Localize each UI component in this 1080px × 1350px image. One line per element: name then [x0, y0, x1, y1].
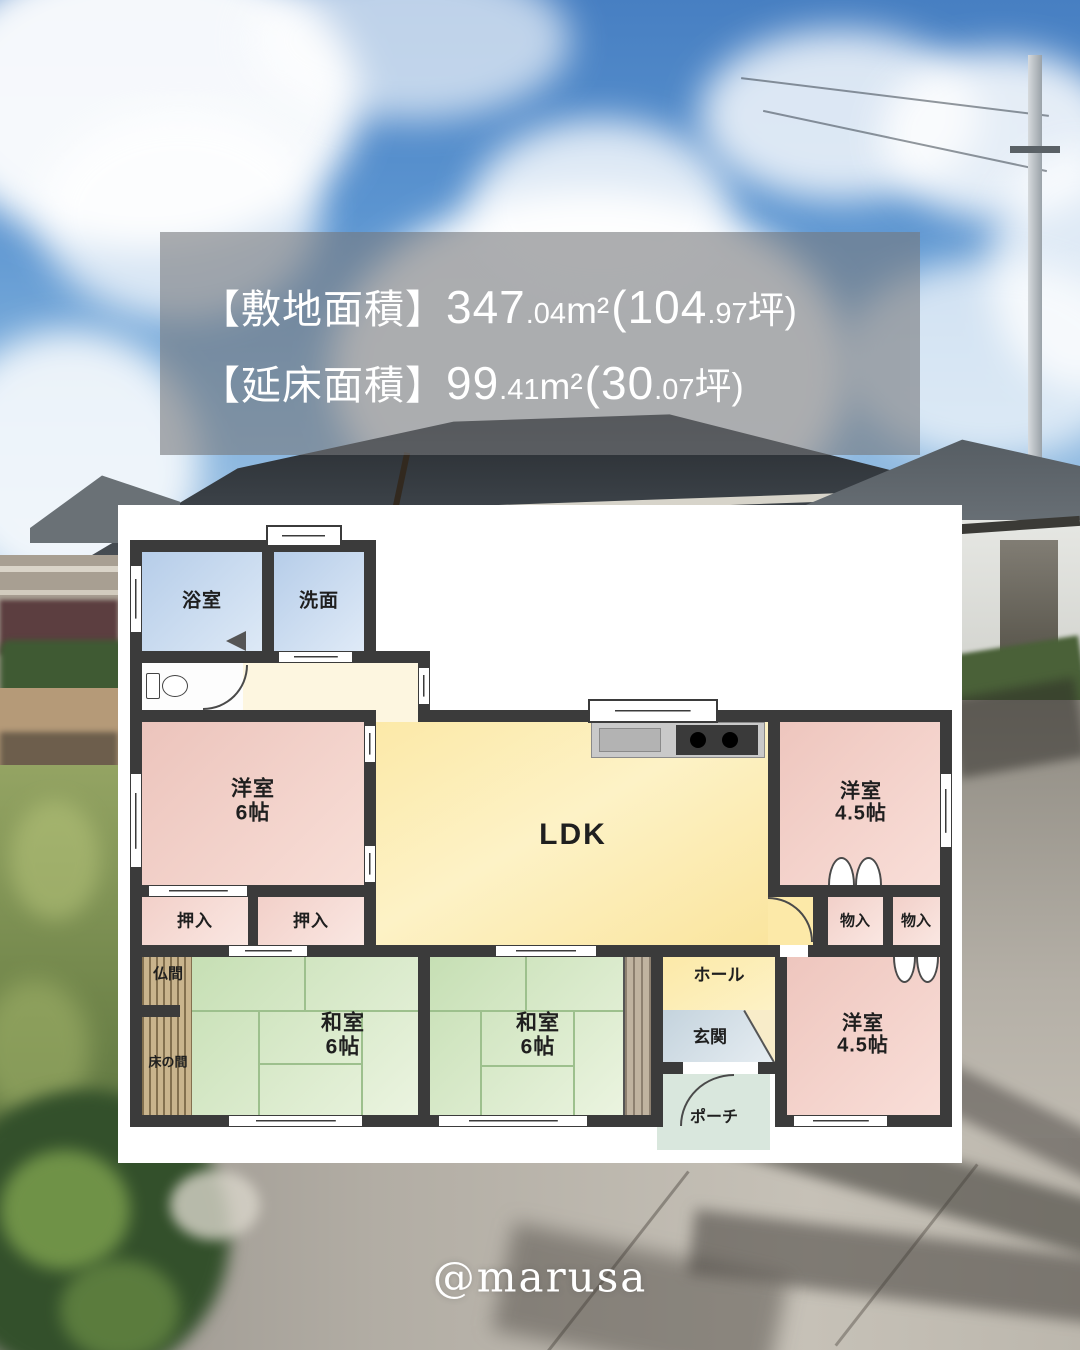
- window: [130, 565, 142, 633]
- label-oshiire-2: 押入: [293, 911, 329, 930]
- label-butsuma: 仏間: [153, 967, 183, 984]
- label-monoire-2: 物入: [901, 914, 931, 931]
- window: [228, 1115, 363, 1127]
- label-tokonoma: 床の間: [148, 1056, 187, 1071]
- instagram-post: 【敷地面積】 347.04m²(104.97坪) 【延床面積】 99.41m²(…: [0, 0, 1080, 1350]
- tatami-line: [480, 1065, 575, 1067]
- label-western-45-bottom: 洋室 4.5帖: [837, 1013, 889, 1058]
- debris-highlight: [170, 1170, 260, 1240]
- wall: [248, 897, 258, 945]
- watermark-handle: @marusa: [433, 1253, 648, 1302]
- tatami-line: [304, 957, 306, 1012]
- floor-area-tsubo-unit: 坪): [694, 356, 743, 410]
- tatami-line: [573, 1010, 575, 1115]
- label-japanese-1: 和室 6帖: [321, 1011, 365, 1058]
- wall: [768, 885, 952, 897]
- site-area-tsubo-int: 104: [628, 280, 708, 334]
- window: [438, 1115, 588, 1127]
- wall: [883, 897, 893, 945]
- wall: [142, 1005, 180, 1017]
- bush-highlight: [60, 1260, 180, 1350]
- wall: [813, 897, 828, 945]
- floor-plan: 浴室 洗面 洋室 6帖 LDK 洋室 4.5帖 押入 押入 物入 物入 仏間 床…: [118, 505, 962, 1163]
- site-area-label: 【敷地面積】: [200, 277, 446, 335]
- window: [130, 773, 142, 868]
- engawa-strip: [623, 957, 651, 1115]
- site-area-tsubo-dec: .97: [707, 298, 747, 331]
- bathroom-door-mark: [226, 631, 246, 651]
- toilet-icon-bowl: [162, 675, 188, 697]
- floor-area-paren-open: (: [585, 356, 601, 410]
- floor-area-line: 【延床面積】 99.41m²(30.07坪): [200, 353, 920, 411]
- opening: [683, 1062, 758, 1074]
- label-western-45-top: 洋室 4.5帖: [835, 781, 887, 826]
- left-beam: [0, 566, 118, 572]
- area-info-overlay: 【敷地面積】 347.04m²(104.97坪) 【延床面積】 99.41m²(…: [160, 232, 920, 455]
- tatami-line: [258, 1063, 363, 1065]
- label-ldk: LDK: [539, 818, 607, 852]
- toilet-icon: [146, 673, 160, 699]
- window: [940, 773, 952, 848]
- label-washroom: 洗面: [299, 590, 339, 611]
- site-area-paren-open: (: [611, 280, 627, 334]
- wall: [418, 957, 430, 1115]
- floor-area-sqm-unit: m²: [540, 366, 583, 408]
- window: [364, 725, 376, 763]
- wall: [262, 552, 274, 651]
- tatami-line: [525, 957, 527, 1012]
- window-kitchen: [588, 699, 718, 723]
- label-japanese-2: 和室 6帖: [516, 1011, 560, 1058]
- site-area-sqm-unit: m²: [566, 290, 609, 332]
- label-western-6: 洋室 6帖: [231, 777, 275, 824]
- kitchen-stove: [676, 725, 758, 755]
- label-bathroom: 浴室: [182, 590, 222, 611]
- label-porch: ポーチ: [690, 1109, 738, 1127]
- sliding-door: [495, 945, 597, 957]
- floor-area-sqm-int: 99: [446, 356, 499, 410]
- wall: [768, 710, 780, 897]
- floor-area-sqm-dec: .41: [499, 374, 539, 407]
- site-area-line: 【敷地面積】 347.04m²(104.97坪): [200, 277, 920, 335]
- wall: [130, 710, 376, 722]
- pole-crossarm: [1010, 146, 1060, 153]
- left-beam: [0, 590, 118, 595]
- label-hall: ホール: [694, 965, 745, 984]
- floor-area-label: 【延床面積】: [200, 353, 446, 411]
- site-area-sqm-int: 347: [446, 280, 526, 334]
- label-monoire-1: 物入: [840, 914, 870, 931]
- window: [793, 1115, 888, 1127]
- bush-highlight: [0, 1150, 130, 1270]
- site-area-tsubo-unit: 坪): [748, 280, 797, 334]
- window-washroom-top: [266, 525, 342, 547]
- wall: [775, 945, 787, 1127]
- floor-area-tsubo-dec: .07: [654, 374, 694, 407]
- wall: [651, 957, 663, 1115]
- stove-burner: [722, 732, 738, 748]
- opening: [780, 945, 808, 957]
- label-genkan: 玄関: [693, 1027, 727, 1046]
- stove-burner: [690, 732, 706, 748]
- kitchen-sink: [599, 728, 661, 752]
- wall: [364, 552, 376, 651]
- sliding-door: [228, 945, 308, 957]
- tatami-line: [480, 1010, 482, 1115]
- window: [364, 845, 376, 883]
- window: [418, 667, 430, 705]
- site-area-sqm-dec: .04: [526, 298, 566, 331]
- sliding-door: [278, 651, 353, 663]
- sliding-door: [148, 885, 248, 897]
- floor-area-tsubo-int: 30: [601, 356, 654, 410]
- label-oshiire-1: 押入: [177, 911, 213, 930]
- grass-highlight: [10, 800, 100, 920]
